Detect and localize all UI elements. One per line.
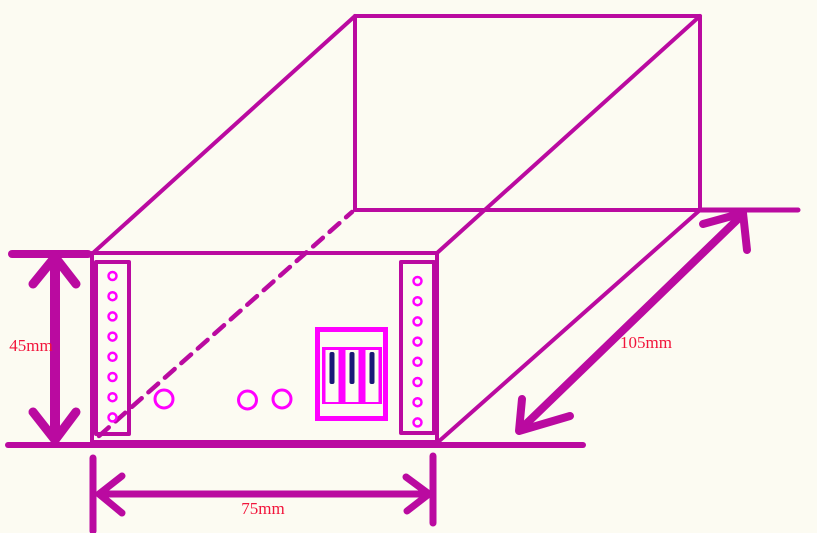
mounting-holes-left [109,272,117,421]
depth-arrow-shaft [524,219,738,426]
mounting-hole [414,297,422,305]
mounting-hole [109,292,117,300]
connector-pin [350,352,355,384]
mounting-hole [109,353,117,361]
mounting-hole [109,393,117,401]
mounting-hole [414,277,422,285]
mounting-hole [109,373,117,381]
mounting-hole [109,413,117,421]
power-connector [318,330,386,419]
mounting-hole [109,312,117,320]
height-label: 45mm [9,336,52,355]
mounting-hole [414,418,422,426]
panel-hole [239,391,257,409]
mounting-hole [414,398,422,406]
mounting-hole [109,272,117,280]
top-right-depth-edge [437,16,700,253]
width-dimension [93,456,433,531]
mounting-hole [414,317,422,325]
connector-slots [326,350,379,402]
connector-pin [370,352,375,384]
enclosure-sketch: 45mm 75mm 105mm [0,0,817,533]
panel-holes [155,390,291,409]
mounting-holes-right [414,277,422,426]
mounting-hole [414,338,422,346]
mounting-hole [414,358,422,366]
width-label: 75mm [241,499,284,518]
top-left-depth-edge [93,16,355,253]
bottom-right-depth-edge [437,210,700,443]
drawing-canvas: 45mm 75mm 105mm [0,0,817,533]
hidden-bottom-edge [99,212,352,436]
panel-hole [155,390,173,408]
left-rack-ear [96,262,129,434]
mounting-hole [109,333,117,341]
enclosure-outline [93,16,798,443]
panel-hole [273,390,291,408]
connector-pin [330,352,335,384]
mounting-hole [414,378,422,386]
depth-dimension [519,213,747,431]
front-panel [92,253,437,442]
depth-label: 105mm [620,333,672,352]
back-face [355,16,700,210]
